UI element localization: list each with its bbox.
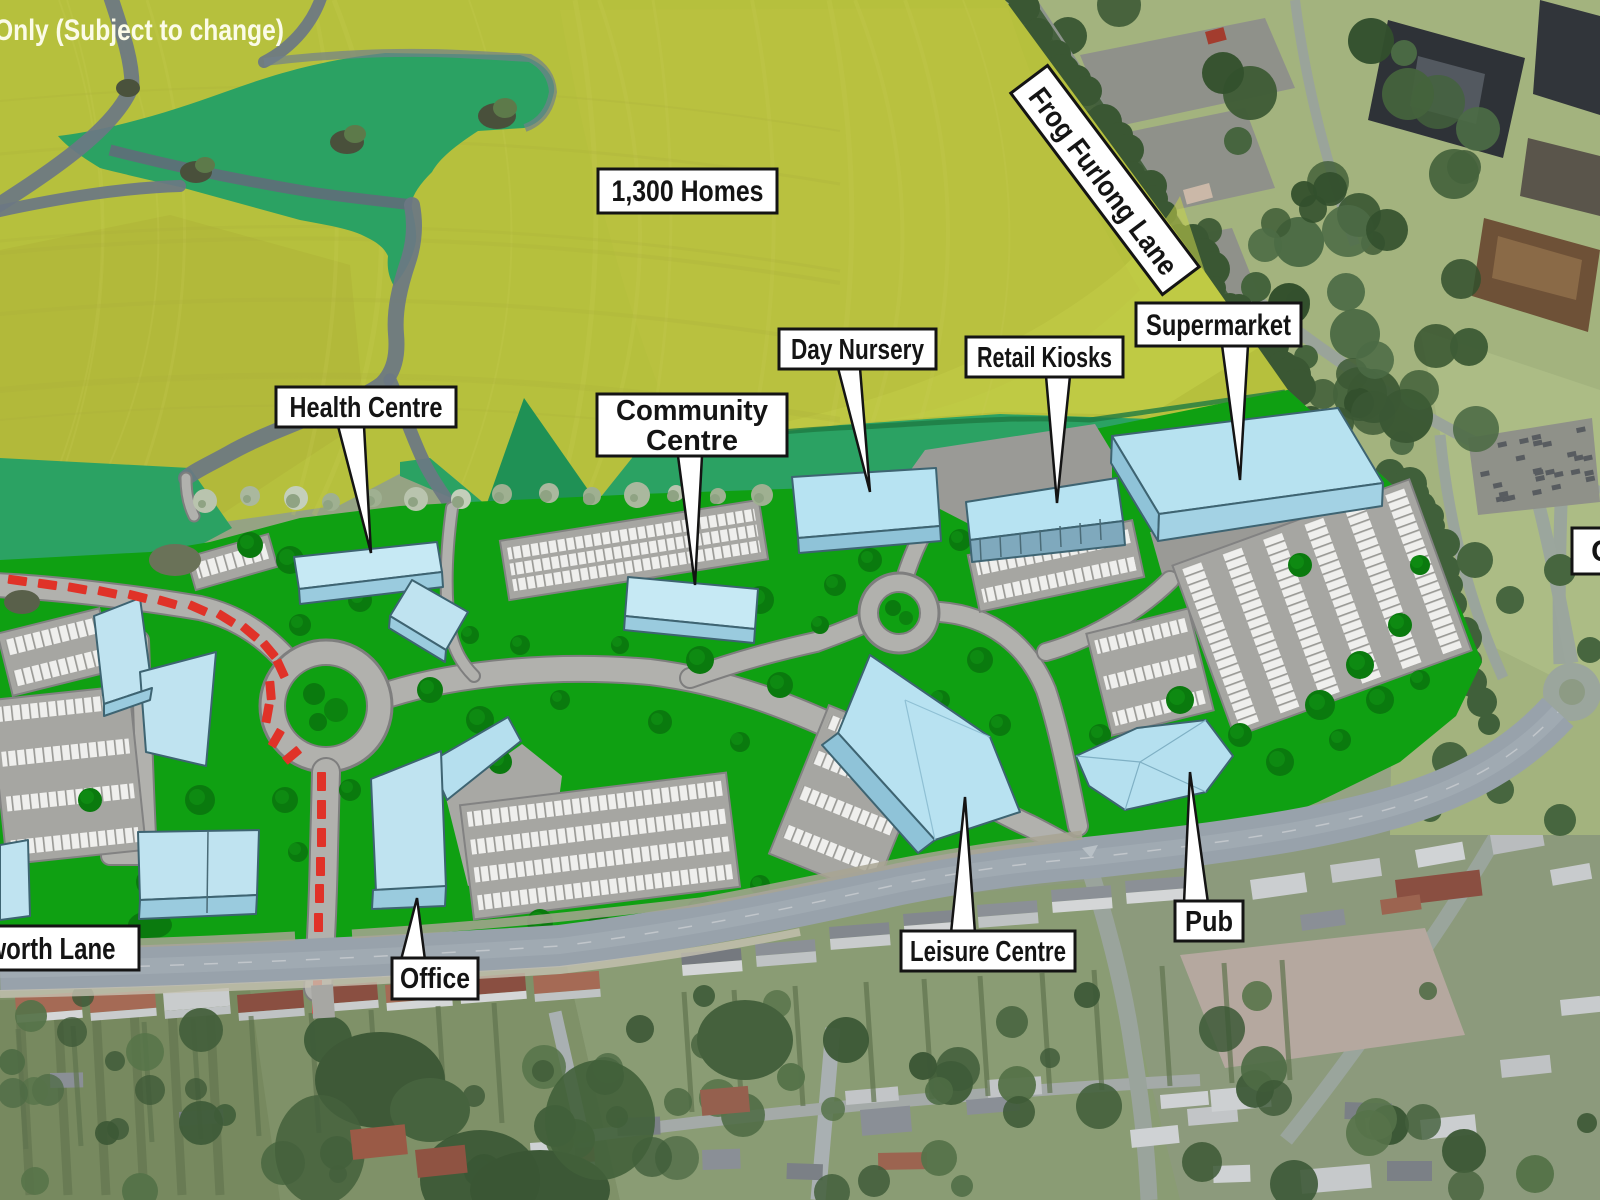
svg-text:Pub: Pub [1185,906,1233,938]
svg-text:Retail Kiosks: Retail Kiosks [977,342,1112,374]
svg-text:Health Centre: Health Centre [290,392,443,424]
svg-text:Office: Office [400,963,470,995]
svg-text:Only (Subject to change): Only (Subject to change) [0,14,284,47]
svg-text:1,300 Homes: 1,300 Homes [612,175,764,208]
svg-text:Leisure Centre: Leisure Centre [910,936,1066,968]
svg-text:Centre: Centre [646,425,738,457]
svg-text:Supermarket: Supermarket [1146,309,1291,342]
svg-text:C: C [1591,535,1600,568]
svg-text:Day Nursery: Day Nursery [791,334,924,366]
svg-text:worth Lane: worth Lane [0,931,116,966]
svg-text:Community: Community [616,395,768,427]
